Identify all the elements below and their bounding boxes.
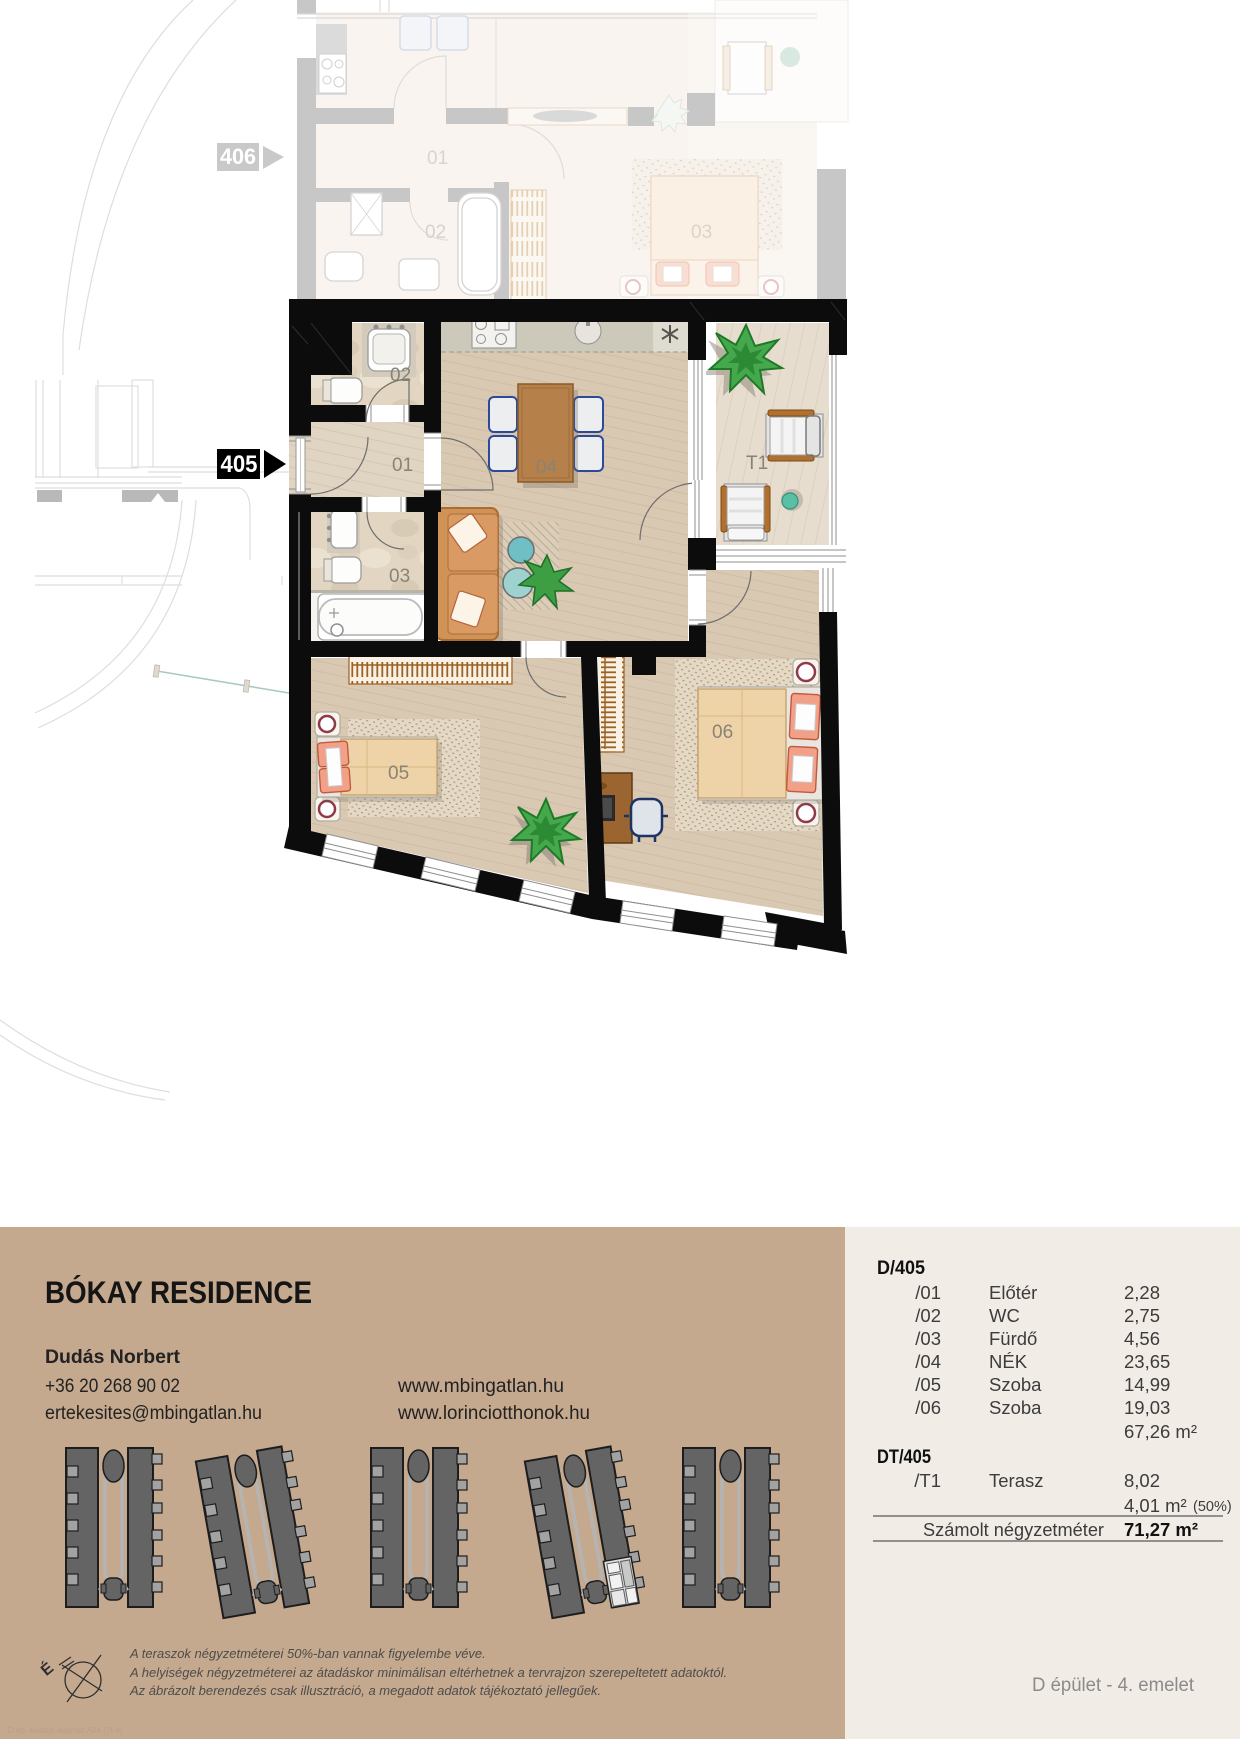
svg-text:DT/405: DT/405 — [877, 1446, 931, 1468]
svg-text:D ép. eladási alaprajz A04 (7f: D ép. eladási alaprajz A04 (7f-4) — [8, 1726, 123, 1735]
svg-text:03: 03 — [691, 222, 712, 243]
svg-text:02: 02 — [425, 222, 446, 243]
svg-text:T1: T1 — [746, 453, 768, 474]
svg-text:4,56: 4,56 — [1124, 1328, 1160, 1349]
svg-text:02: 02 — [390, 365, 411, 386]
svg-text:D épület - 4. emelet: D épület - 4. emelet — [1032, 1674, 1195, 1696]
svg-text:(50%): (50%) — [1193, 1499, 1232, 1515]
svg-text:06: 06 — [712, 722, 733, 743]
svg-text:03: 03 — [389, 566, 410, 587]
svg-text:Az ábrázolt berendezés csak il: Az ábrázolt berendezés csak illusztráció… — [129, 1683, 601, 1698]
svg-text:/01: /01 — [915, 1282, 941, 1303]
svg-text:Szoba: Szoba — [989, 1374, 1042, 1395]
svg-text:Dudás Norbert: Dudás Norbert — [45, 1346, 181, 1368]
svg-text:/T1: /T1 — [914, 1470, 941, 1491]
svg-text:BÓKAY RESIDENCE: BÓKAY RESIDENCE — [45, 1274, 312, 1310]
svg-text:A teraszok négyzetméterei 50%-: A teraszok négyzetméterei 50%-ban vannak… — [129, 1646, 486, 1661]
svg-text:/05: /05 — [915, 1374, 941, 1395]
svg-text:23,65: 23,65 — [1124, 1351, 1170, 1372]
svg-text:/03: /03 — [915, 1328, 941, 1349]
svg-text:14,99: 14,99 — [1124, 1374, 1170, 1395]
svg-text:04: 04 — [536, 457, 558, 478]
svg-text:+36 20 268 90 02: +36 20 268 90 02 — [45, 1376, 180, 1397]
svg-text:Terasz: Terasz — [989, 1470, 1044, 1491]
svg-text:67,26 m²: 67,26 m² — [1124, 1421, 1197, 1442]
svg-text:01: 01 — [427, 148, 448, 169]
svg-text:4,01 m²: 4,01 m² — [1124, 1495, 1187, 1516]
svg-text:71,27 m²: 71,27 m² — [1124, 1519, 1198, 1540]
svg-text:www.mbingatlan.hu: www.mbingatlan.hu — [397, 1376, 564, 1397]
svg-text:19,03: 19,03 — [1124, 1397, 1170, 1418]
svg-text:406: 406 — [220, 144, 256, 169]
svg-text:Számolt négyzetméter: Számolt négyzetméter — [923, 1519, 1104, 1540]
svg-text:05: 05 — [388, 763, 409, 784]
svg-text:NÉK: NÉK — [989, 1351, 1028, 1372]
svg-text:01: 01 — [392, 455, 413, 476]
svg-text:A helyiségek négyzetméterei az: A helyiségek négyzetméterei az átadáskor… — [129, 1665, 727, 1680]
svg-text:ertekesites@mbingatlan.hu: ertekesites@mbingatlan.hu — [45, 1403, 262, 1424]
svg-text:/02: /02 — [915, 1305, 941, 1326]
svg-text:2,75: 2,75 — [1124, 1305, 1160, 1326]
svg-text:/06: /06 — [915, 1397, 941, 1418]
svg-text:Előtér: Előtér — [989, 1282, 1037, 1303]
svg-text:405: 405 — [221, 451, 258, 478]
svg-text:Fürdő: Fürdő — [989, 1328, 1037, 1349]
svg-text:2,28: 2,28 — [1124, 1282, 1160, 1303]
svg-text:8,02: 8,02 — [1124, 1470, 1160, 1491]
svg-text:/04: /04 — [915, 1351, 941, 1372]
svg-text:WC: WC — [989, 1305, 1020, 1326]
svg-text:Szoba: Szoba — [989, 1397, 1042, 1418]
svg-text:D/405: D/405 — [877, 1257, 925, 1279]
svg-text:www.lorinciotthonok.hu: www.lorinciotthonok.hu — [397, 1403, 590, 1424]
